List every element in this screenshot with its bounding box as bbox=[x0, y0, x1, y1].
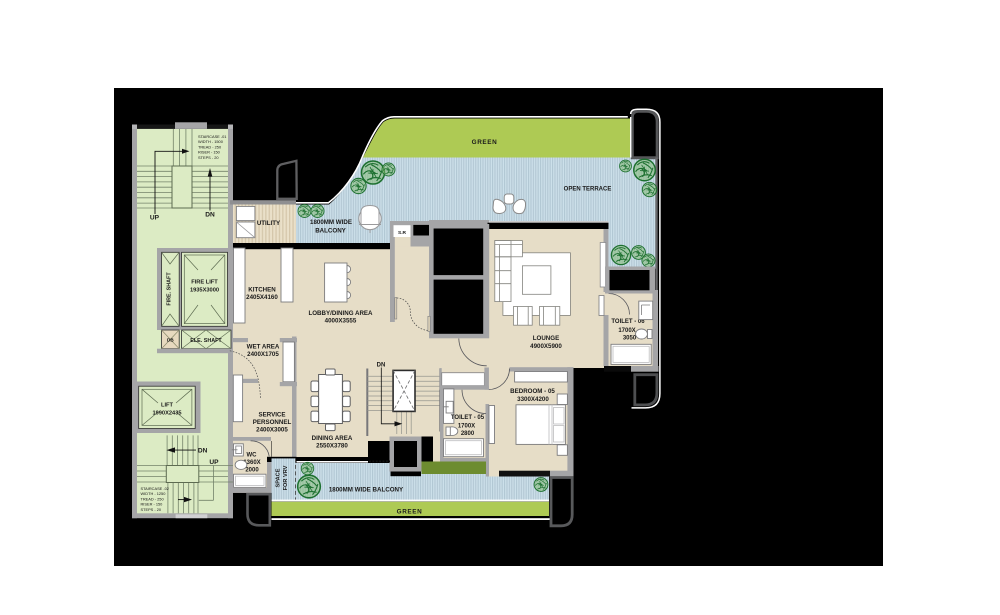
svg-text:4900X5900: 4900X5900 bbox=[530, 343, 562, 350]
svg-text:ELE. SHAFT: ELE. SHAFT bbox=[190, 338, 222, 344]
svg-text:LOUNGE: LOUNGE bbox=[533, 335, 559, 342]
svg-text:2405X4160: 2405X4160 bbox=[246, 294, 278, 301]
svg-text:1800MM WIDE BALCONY: 1800MM WIDE BALCONY bbox=[329, 486, 404, 493]
svg-text:GREEN: GREEN bbox=[397, 508, 423, 515]
svg-text:STEPS - 20: STEPS - 20 bbox=[198, 155, 219, 160]
svg-text:LOBBY/DINING AREA: LOBBY/DINING AREA bbox=[308, 310, 373, 317]
svg-text:DN: DN bbox=[198, 448, 208, 455]
svg-text:SERVICE: SERVICE bbox=[258, 412, 285, 419]
svg-text:3300X4200: 3300X4200 bbox=[517, 396, 549, 403]
svg-text:STEPS - 20: STEPS - 20 bbox=[141, 507, 162, 512]
svg-text:FOR VRV: FOR VRV bbox=[283, 465, 289, 490]
svg-text:UP: UP bbox=[150, 215, 160, 222]
svg-text:1700X: 1700X bbox=[458, 424, 475, 430]
svg-text:TOILET - 05: TOILET - 05 bbox=[451, 415, 485, 421]
svg-text:BALCONY: BALCONY bbox=[315, 228, 346, 235]
svg-text:1935X3000: 1935X3000 bbox=[190, 288, 219, 294]
svg-text:2550X3780: 2550X3780 bbox=[316, 443, 348, 450]
svg-text:2000: 2000 bbox=[245, 468, 259, 474]
svg-text:UTILITY: UTILITY bbox=[257, 220, 281, 227]
svg-text:3050: 3050 bbox=[623, 335, 637, 341]
svg-text:2800: 2800 bbox=[461, 431, 475, 437]
svg-text:BEDROOM - 05: BEDROOM - 05 bbox=[510, 388, 555, 395]
svg-text:S.R: S.R bbox=[398, 230, 407, 236]
svg-text:KITCHEN: KITCHEN bbox=[248, 287, 276, 294]
svg-text:4000X3555: 4000X3555 bbox=[325, 318, 357, 325]
svg-text:WC: WC bbox=[247, 453, 258, 459]
svg-text:UP: UP bbox=[209, 459, 219, 466]
svg-text:DN: DN bbox=[205, 212, 215, 219]
svg-text:FIRE. SHAFT: FIRE. SHAFT bbox=[167, 272, 173, 306]
svg-text:1700X: 1700X bbox=[618, 328, 635, 334]
svg-text:GREEN: GREEN bbox=[472, 139, 498, 146]
svg-text:OPEN TERRACE: OPEN TERRACE bbox=[564, 186, 612, 192]
svg-text:DB: DB bbox=[167, 338, 174, 344]
svg-text:PERSONNEL: PERSONNEL bbox=[253, 419, 292, 426]
svg-text:2400X3005: 2400X3005 bbox=[256, 427, 288, 434]
svg-text:1800MM WIDE: 1800MM WIDE bbox=[310, 219, 352, 226]
svg-text:FIRE LIFT: FIRE LIFT bbox=[191, 280, 218, 286]
svg-text:2400X1705: 2400X1705 bbox=[247, 351, 279, 358]
svg-text:WET AREA: WET AREA bbox=[247, 344, 280, 351]
svg-text:DINING AREA: DINING AREA bbox=[312, 435, 353, 442]
svg-text:SPACE: SPACE bbox=[276, 468, 282, 487]
svg-text:LIFT: LIFT bbox=[161, 403, 174, 409]
svg-text:1990X2435: 1990X2435 bbox=[152, 411, 181, 417]
